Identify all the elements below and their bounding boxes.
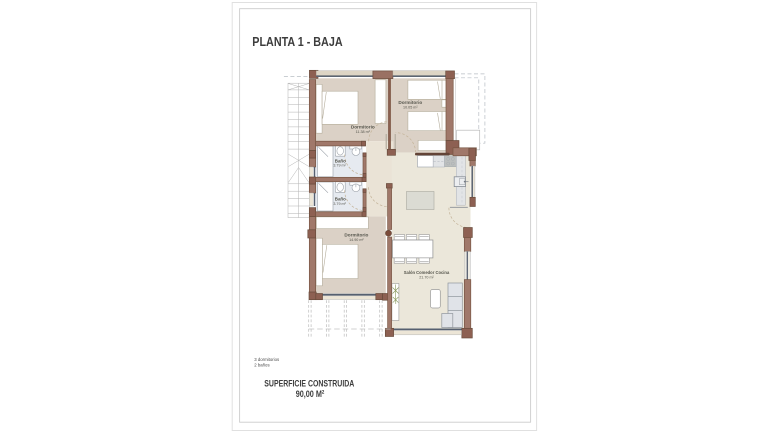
svg-text:Dormitorio: Dormitorio bbox=[344, 232, 368, 237]
svg-text:11.38 m²: 11.38 m² bbox=[356, 130, 371, 134]
svg-text:2 baños: 2 baños bbox=[254, 363, 269, 368]
svg-text:21.70 m²: 21.70 m² bbox=[419, 275, 434, 279]
svg-text:14.90 m²: 14.90 m² bbox=[349, 238, 364, 242]
svg-text:10.05 m²: 10.05 m² bbox=[403, 106, 418, 110]
svg-text:Salón Comedor Cocina: Salón Comedor Cocina bbox=[404, 270, 450, 275]
svg-text:90,00 M²: 90,00 M² bbox=[296, 388, 325, 399]
svg-text:3 dormitorios: 3 dormitorios bbox=[254, 357, 279, 362]
svg-text:3.79 m²: 3.79 m² bbox=[333, 164, 346, 168]
svg-text:Dormitorio: Dormitorio bbox=[398, 100, 422, 105]
svg-text:Dormitorio: Dormitorio bbox=[351, 125, 375, 130]
svg-text:3.79 m²: 3.79 m² bbox=[333, 202, 346, 206]
svg-text:PLANTA 1 - BAJA: PLANTA 1 - BAJA bbox=[252, 34, 343, 49]
